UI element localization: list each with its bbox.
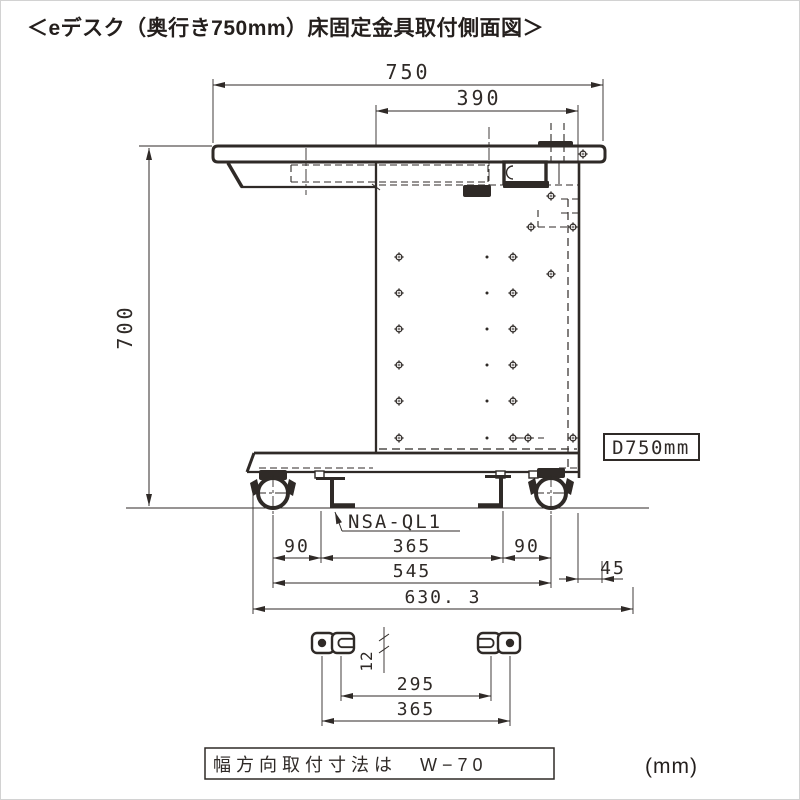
svg-text:365: 365 [393,536,432,557]
svg-text:90: 90 [514,536,540,557]
svg-text:365: 365 [397,699,436,720]
bracket-detail-top-view: 12 295 365 [312,627,520,726]
controller-box [463,185,491,197]
page-title: ＜eデスク（奥行き750mm）床固定金具取付側面図＞ [27,16,544,40]
bracket-hole [506,639,514,647]
svg-text:45: 45 [600,558,626,579]
desk-edge-strip [538,141,573,146]
dim-45: 45 [559,558,626,579]
dim-545: 545 [273,561,551,583]
dim-12: 12 [357,627,389,673]
dim-390-value: 390 [456,86,501,110]
svg-text:295: 295 [397,674,436,695]
bracket-hole [318,639,326,647]
svg-text:545: 545 [393,561,432,582]
dim-390: 390 [376,86,578,162]
width-note-box: 幅方向取付寸法は W−70 [205,748,554,779]
dim-365-holes: 365 [322,699,510,721]
desk-leg [376,149,588,478]
dim-630-3: 630. 3 [253,587,633,609]
base-beam [247,449,579,478]
bracket-model-text: NSA-QL1 [348,511,442,533]
dim-700: 700 [113,146,212,506]
dim-90-right: 90 [503,536,551,558]
floor-bracket-left [316,478,355,506]
label-nsa-ql1: NSA-QL1 [335,511,460,533]
dim-750: 750 [213,60,603,143]
dim-700-value: 700 [113,304,137,349]
bracket-right-top-view [478,633,520,653]
unit-label: (mm) [645,755,698,778]
svg-text:630. 3: 630. 3 [404,587,481,608]
svg-text:12: 12 [357,650,376,671]
desk-side-view-diagram: ＜eデスク（奥行き750mm）床固定金具取付側面図＞ 750 390 700 [1,1,799,799]
bottom-dimensions: 90 365 90 545 45 630. 3 [253,483,633,614]
drawing-page: ＜eデスク（奥行き750mm）床固定金具取付側面図＞ 750 390 700 [0,0,800,800]
dim-90-left: 90 [273,536,321,558]
dim-365-center: 365 [321,536,503,558]
floor-bracket-right [478,476,511,506]
width-note-text: 幅方向取付寸法は W−70 [213,755,488,775]
dim-295: 295 [341,674,491,696]
badge-d750mm: D750mm [604,434,699,460]
svg-text:90: 90 [284,536,310,557]
depth-badge-text: D750mm [612,437,690,459]
dim-750-value: 750 [385,60,430,84]
cable-box [503,162,559,188]
bracket-left-top-view [312,633,354,653]
